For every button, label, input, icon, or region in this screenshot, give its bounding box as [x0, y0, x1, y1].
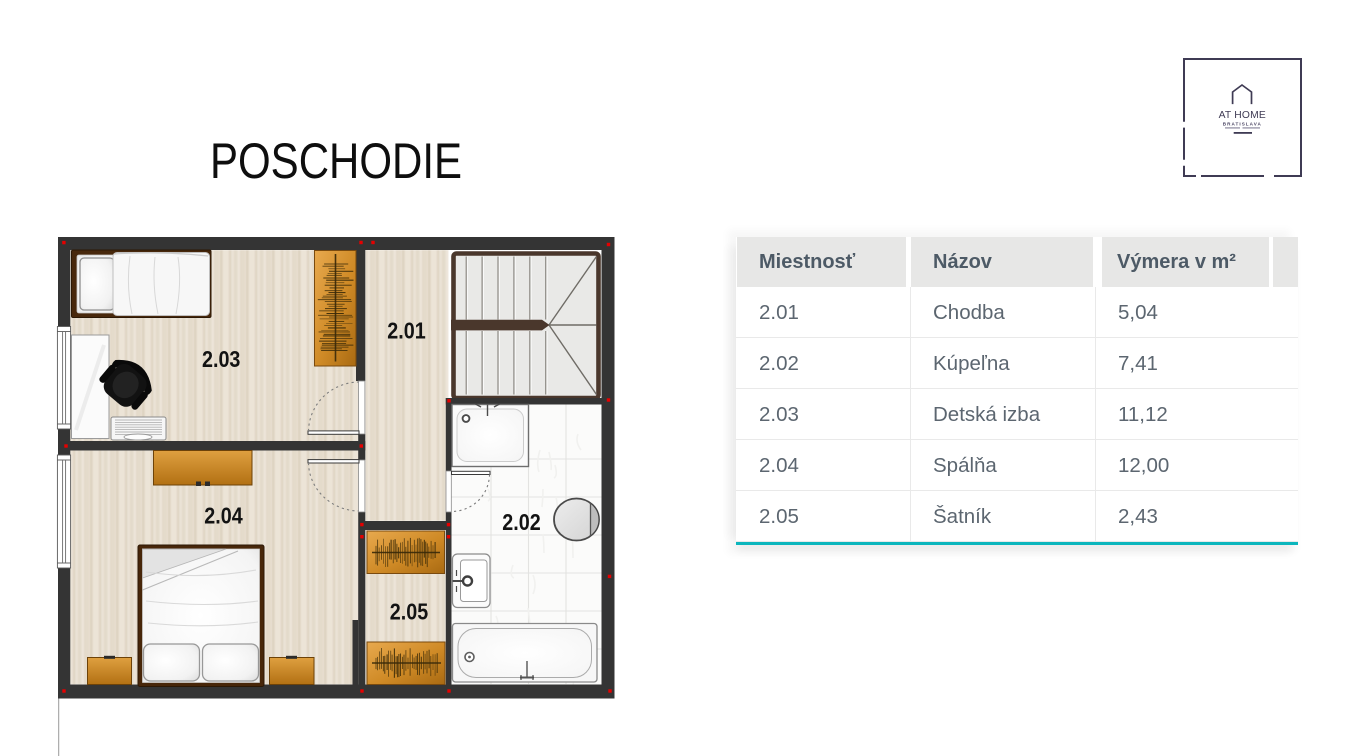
- svg-text:BRATISLAVA: BRATISLAVA: [1223, 121, 1262, 126]
- svg-text:2.01: 2.01: [387, 317, 425, 344]
- svg-text:AT HOME: AT HOME: [1219, 110, 1266, 121]
- svg-text:2.03: 2.03: [202, 345, 240, 372]
- svg-text:2.04: 2.04: [204, 502, 242, 529]
- svg-text:2.05: 2.05: [390, 598, 428, 625]
- svg-text:2.02: 2.02: [502, 508, 540, 535]
